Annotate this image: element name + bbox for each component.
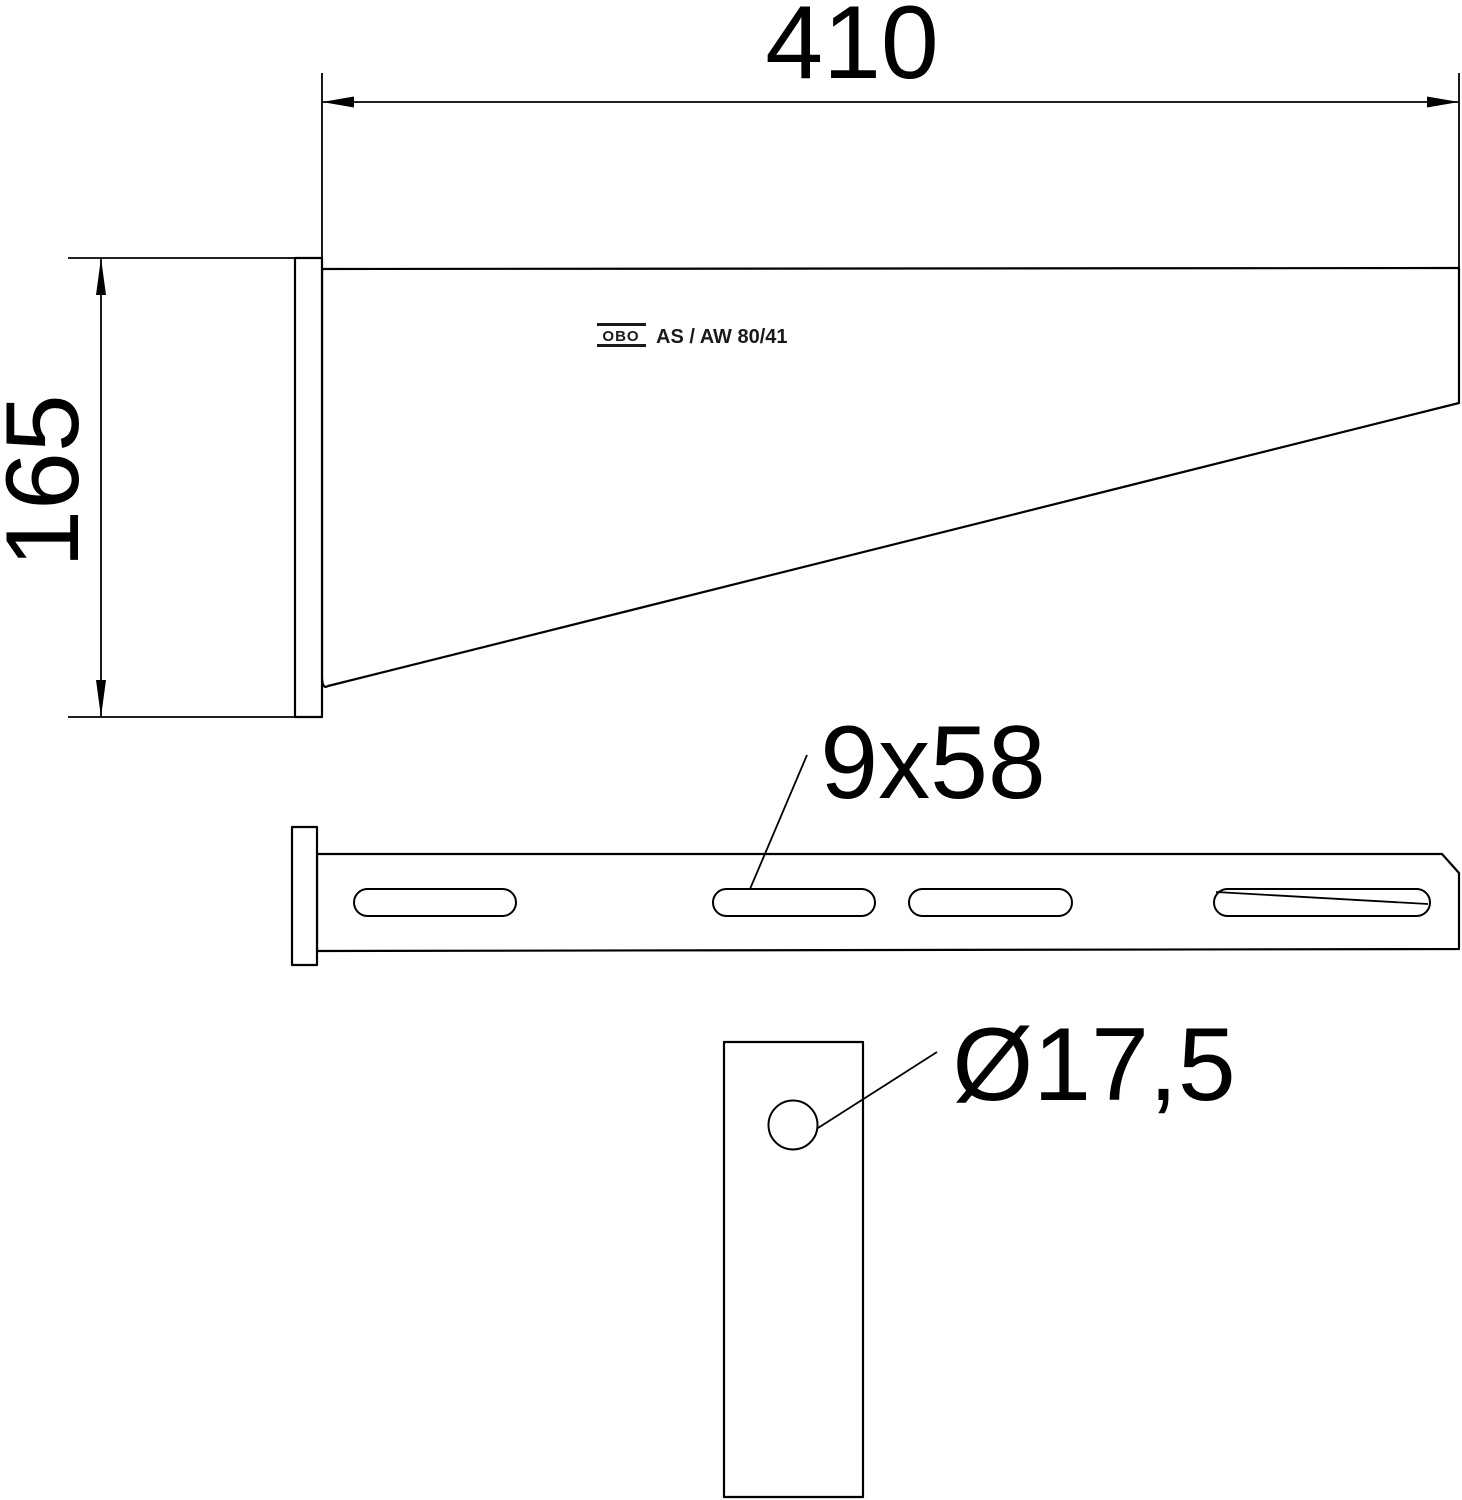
slot-hole-3 — [909, 889, 1072, 916]
top-view-arm: 9x58 — [292, 705, 1459, 965]
model-label: AS / AW 80/41 — [656, 326, 788, 348]
arrowhead-bottom — [96, 680, 106, 717]
technical-drawing: 410 165 OBO AS / AW 80/41 — [0, 0, 1462, 1500]
dimension-165: 165 — [0, 258, 323, 717]
wall-plate-flange — [292, 827, 317, 965]
arrowhead-top — [96, 258, 106, 295]
mounting-hole — [769, 1101, 818, 1150]
front-view-plate: Ø17,5 — [724, 1007, 1236, 1497]
bracket-body-outline — [322, 268, 1459, 687]
obo-logo: OBO — [602, 328, 639, 345]
slot-hole-2 — [713, 889, 875, 916]
hole-diameter-label: Ø17,5 — [952, 1007, 1235, 1123]
hole-callout: Ø17,5 — [818, 1007, 1236, 1128]
dimension-label-165: 165 — [0, 394, 101, 568]
arrowhead-right — [1427, 97, 1459, 108]
slot-hole-1 — [354, 889, 516, 916]
dimension-410: 410 — [322, 0, 1459, 268]
dimension-label-410: 410 — [765, 0, 939, 101]
wall-plate-side — [295, 258, 322, 717]
arrowhead-left — [322, 97, 354, 108]
drawing-canvas: 410 165 OBO AS / AW 80/41 — [0, 0, 1462, 1500]
obo-logo-top-bar — [597, 323, 646, 326]
slot-size-label: 9x58 — [820, 705, 1046, 821]
side-view: 410 165 OBO AS / AW 80/41 — [0, 0, 1459, 717]
